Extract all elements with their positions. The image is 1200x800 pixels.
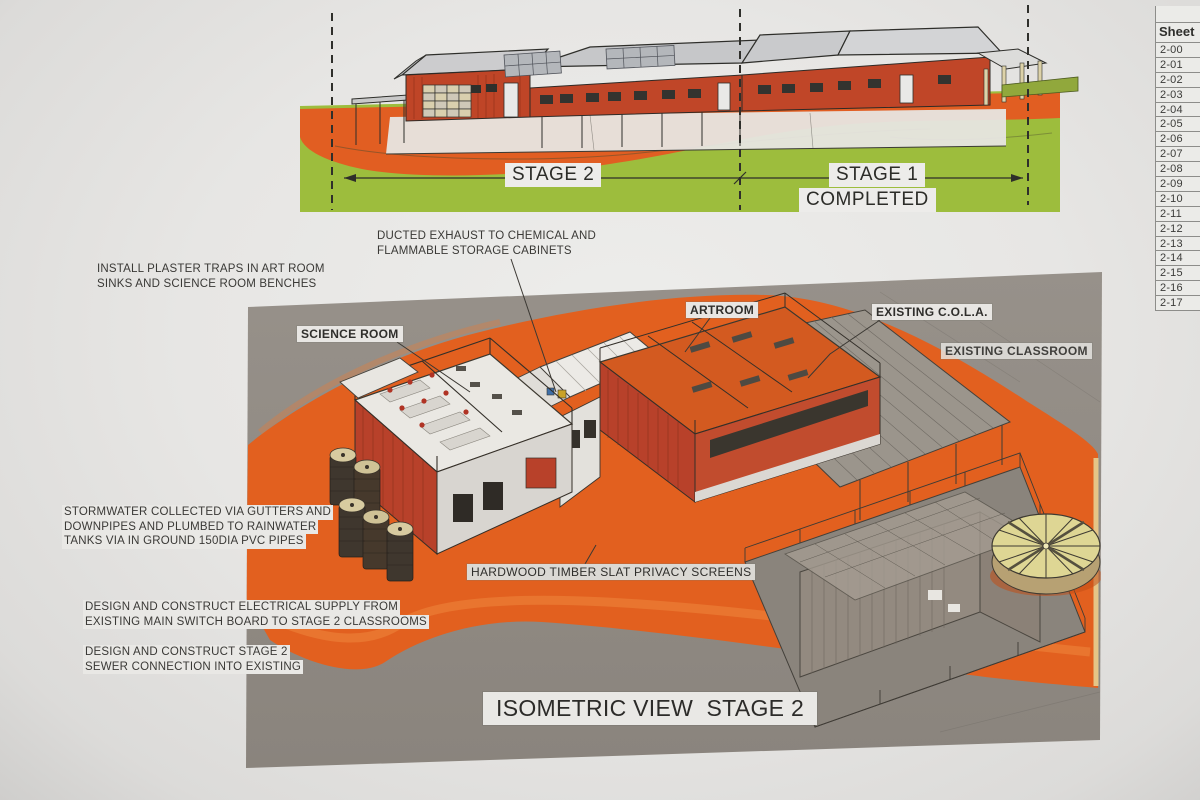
elevation-drawing — [290, 5, 1090, 215]
sheet-row: 2-03 — [1156, 88, 1200, 103]
sheet-row: 2-13 — [1156, 237, 1200, 252]
note-line: DESIGN AND CONSTRUCT STAGE 2 — [83, 645, 290, 660]
note-electrical-supply: DESIGN AND CONSTRUCT ELECTRICAL SUPPLY F… — [83, 600, 429, 629]
note-line: STORMWATER COLLECTED VIA GUTTERS AND — [62, 505, 333, 520]
sheet-row: 2-12 — [1156, 222, 1200, 237]
stage2-label: STAGE 2 — [505, 163, 601, 187]
isometric-view-title: ISOMETRIC VIEW STAGE 2 — [483, 692, 817, 725]
artroom-label: ARTROOM — [686, 302, 758, 318]
architectural-sheet-photo: STAGE 2 STAGE 1 COMPLETED Sheet 2-00 2-0… — [0, 0, 1200, 800]
sheet-row: 2-09 — [1156, 177, 1200, 192]
stage1-label: STAGE 1 — [829, 163, 925, 187]
note-line: DESIGN AND CONSTRUCT ELECTRICAL SUPPLY F… — [83, 600, 400, 615]
sheet-list-table: Sheet 2-00 2-01 2-02 2-03 2-04 2-05 2-06… — [1155, 6, 1200, 311]
note-line: DUCTED EXHAUST TO CHEMICAL AND — [377, 229, 596, 244]
sheet-row: 2-15 — [1156, 266, 1200, 281]
sheet-table-spacer — [1156, 6, 1200, 23]
sheet-row: 2-04 — [1156, 103, 1200, 118]
note-line: SEWER CONNECTION INTO EXISTING — [83, 660, 303, 675]
note-line: TANKS VIA IN GROUND 150DIA PVC PIPES — [62, 534, 306, 549]
sheet-row: 2-14 — [1156, 251, 1200, 266]
note-plaster-traps: INSTALL PLASTER TRAPS IN ART ROOM SINKS … — [97, 262, 325, 291]
sheet-row: 2-11 — [1156, 207, 1200, 222]
note-sewer-connection: DESIGN AND CONSTRUCT STAGE 2 SEWER CONNE… — [83, 645, 303, 674]
sheet-row: 2-00 — [1156, 43, 1200, 58]
existing-cola-label: EXISTING C.O.L.A. — [872, 304, 992, 320]
privacy-screens-label: HARDWOOD TIMBER SLAT PRIVACY SCREENS — [467, 564, 755, 580]
sheet-row: 2-05 — [1156, 117, 1200, 132]
note-line: EXISTING MAIN SWITCH BOARD TO STAGE 2 CL… — [83, 615, 429, 630]
sheet-row: 2-07 — [1156, 147, 1200, 162]
note-ducted-exhaust: DUCTED EXHAUST TO CHEMICAL AND FLAMMABLE… — [377, 229, 596, 258]
sheet-row: 2-10 — [1156, 192, 1200, 207]
sheet-table-header: Sheet — [1156, 23, 1200, 43]
sheet-row: 2-17 — [1156, 296, 1200, 311]
note-stormwater: STORMWATER COLLECTED VIA GUTTERS AND DOW… — [62, 505, 333, 549]
sheet-row: 2-01 — [1156, 58, 1200, 73]
sheet-row: 2-08 — [1156, 162, 1200, 177]
sheet-row: 2-16 — [1156, 281, 1200, 296]
existing-classroom-label: EXISTING CLASSROOM — [941, 343, 1092, 359]
completed-label: COMPLETED — [799, 188, 936, 212]
note-line: DOWNPIPES AND PLUMBED TO RAINWATER — [62, 520, 318, 535]
note-line: INSTALL PLASTER TRAPS IN ART ROOM — [97, 262, 325, 277]
note-line: FLAMMABLE STORAGE CABINETS — [377, 244, 572, 259]
sheet-row: 2-06 — [1156, 132, 1200, 147]
note-line: SINKS AND SCIENCE ROOM BENCHES — [97, 277, 316, 292]
science-room-label: SCIENCE ROOM — [297, 326, 403, 342]
sheet-row: 2-02 — [1156, 73, 1200, 88]
